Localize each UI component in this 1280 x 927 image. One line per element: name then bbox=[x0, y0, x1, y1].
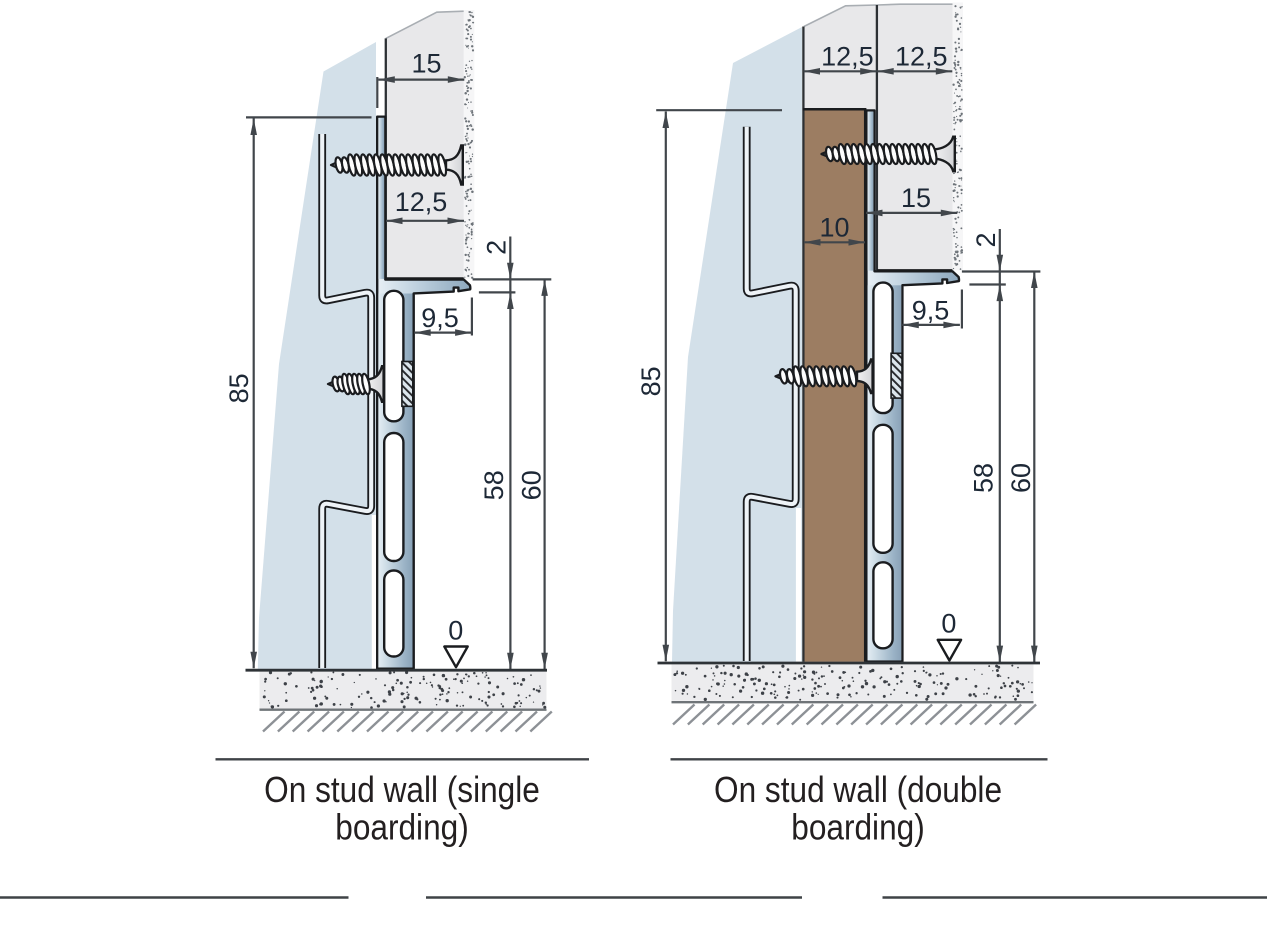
svg-text:58: 58 bbox=[968, 463, 998, 493]
svg-text:58: 58 bbox=[479, 470, 509, 500]
svg-text:2: 2 bbox=[971, 232, 1001, 247]
svg-text:On stud wall (double: On stud wall (double bbox=[714, 770, 1002, 810]
svg-text:15: 15 bbox=[901, 183, 931, 213]
svg-text:12,5: 12,5 bbox=[821, 42, 874, 72]
svg-text:60: 60 bbox=[517, 470, 547, 500]
svg-text:0: 0 bbox=[941, 609, 956, 639]
svg-text:9,5: 9,5 bbox=[421, 303, 459, 333]
svg-text:boarding): boarding) bbox=[335, 808, 468, 848]
svg-text:On stud wall (single: On stud wall (single bbox=[264, 770, 540, 810]
svg-text:12,5: 12,5 bbox=[895, 42, 948, 72]
svg-text:2: 2 bbox=[482, 240, 512, 255]
svg-text:12,5: 12,5 bbox=[395, 187, 448, 217]
svg-text:0: 0 bbox=[448, 616, 463, 646]
svg-text:15: 15 bbox=[411, 49, 441, 79]
svg-text:85: 85 bbox=[636, 366, 666, 396]
svg-text:85: 85 bbox=[224, 373, 254, 403]
svg-text:9,5: 9,5 bbox=[912, 296, 950, 326]
svg-text:60: 60 bbox=[1006, 463, 1036, 493]
svg-text:10: 10 bbox=[819, 213, 849, 243]
svg-text:boarding): boarding) bbox=[791, 808, 924, 848]
